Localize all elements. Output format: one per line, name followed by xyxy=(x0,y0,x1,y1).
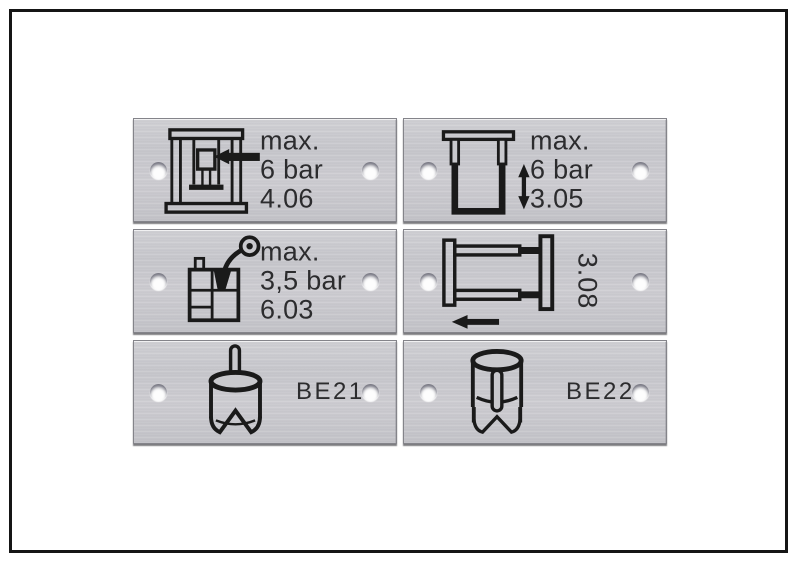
text-line: max. xyxy=(530,127,593,156)
text-line: 6.03 xyxy=(260,296,346,325)
press-ram-arrow-icon xyxy=(162,127,262,215)
text-line: 6 bar xyxy=(260,156,323,185)
mounting-hole-right xyxy=(632,162,649,179)
plate-rotated-label: 3.08 xyxy=(572,253,603,310)
plate-max-3-5bar-6-03: max. 3,5 bar 6.03 xyxy=(133,229,397,333)
text-line: max. xyxy=(260,127,323,156)
punch-with-pin-icon xyxy=(468,347,526,440)
plate-max-6bar-3-05: max. 6 bar 3.05 xyxy=(403,118,667,222)
photo-canvas: max. 6 bar 4.06 xyxy=(0,0,800,565)
mounting-hole-left xyxy=(150,273,167,290)
plate-be22: BE22 xyxy=(403,340,667,444)
text-line: 3.05 xyxy=(530,185,593,214)
mounting-hole-right xyxy=(362,273,379,290)
text-line: 6 bar xyxy=(530,156,593,185)
plate-3-08: 3.08 xyxy=(403,229,667,333)
plate-label: BE22 xyxy=(566,378,635,406)
hollow-punch-icon xyxy=(206,344,265,440)
press-stroke-arrow-icon xyxy=(434,128,540,217)
label-plates-grid: max. 6 bar 4.06 xyxy=(133,118,667,444)
plate-label: BE21 xyxy=(296,378,365,406)
carriage-left-arrow-icon xyxy=(438,234,568,331)
plate-text: max. 6 bar 4.06 xyxy=(260,127,323,214)
plate-max-6bar-4-06: max. 6 bar 4.06 xyxy=(133,118,397,222)
plate-text: max. 3,5 bar 6.03 xyxy=(260,238,346,325)
mounting-hole-left xyxy=(150,384,167,401)
plate-text: max. 6 bar 3.05 xyxy=(530,127,593,214)
mounting-hole-left xyxy=(420,273,437,290)
text-line: 4.06 xyxy=(260,185,323,214)
plate-be21: BE21 xyxy=(133,340,397,444)
mounting-hole-right xyxy=(362,162,379,179)
text-line: max. xyxy=(260,238,346,267)
text-line: 3,5 bar xyxy=(260,267,346,296)
mounting-hole-left xyxy=(420,384,437,401)
mounting-hole-right xyxy=(632,273,649,290)
